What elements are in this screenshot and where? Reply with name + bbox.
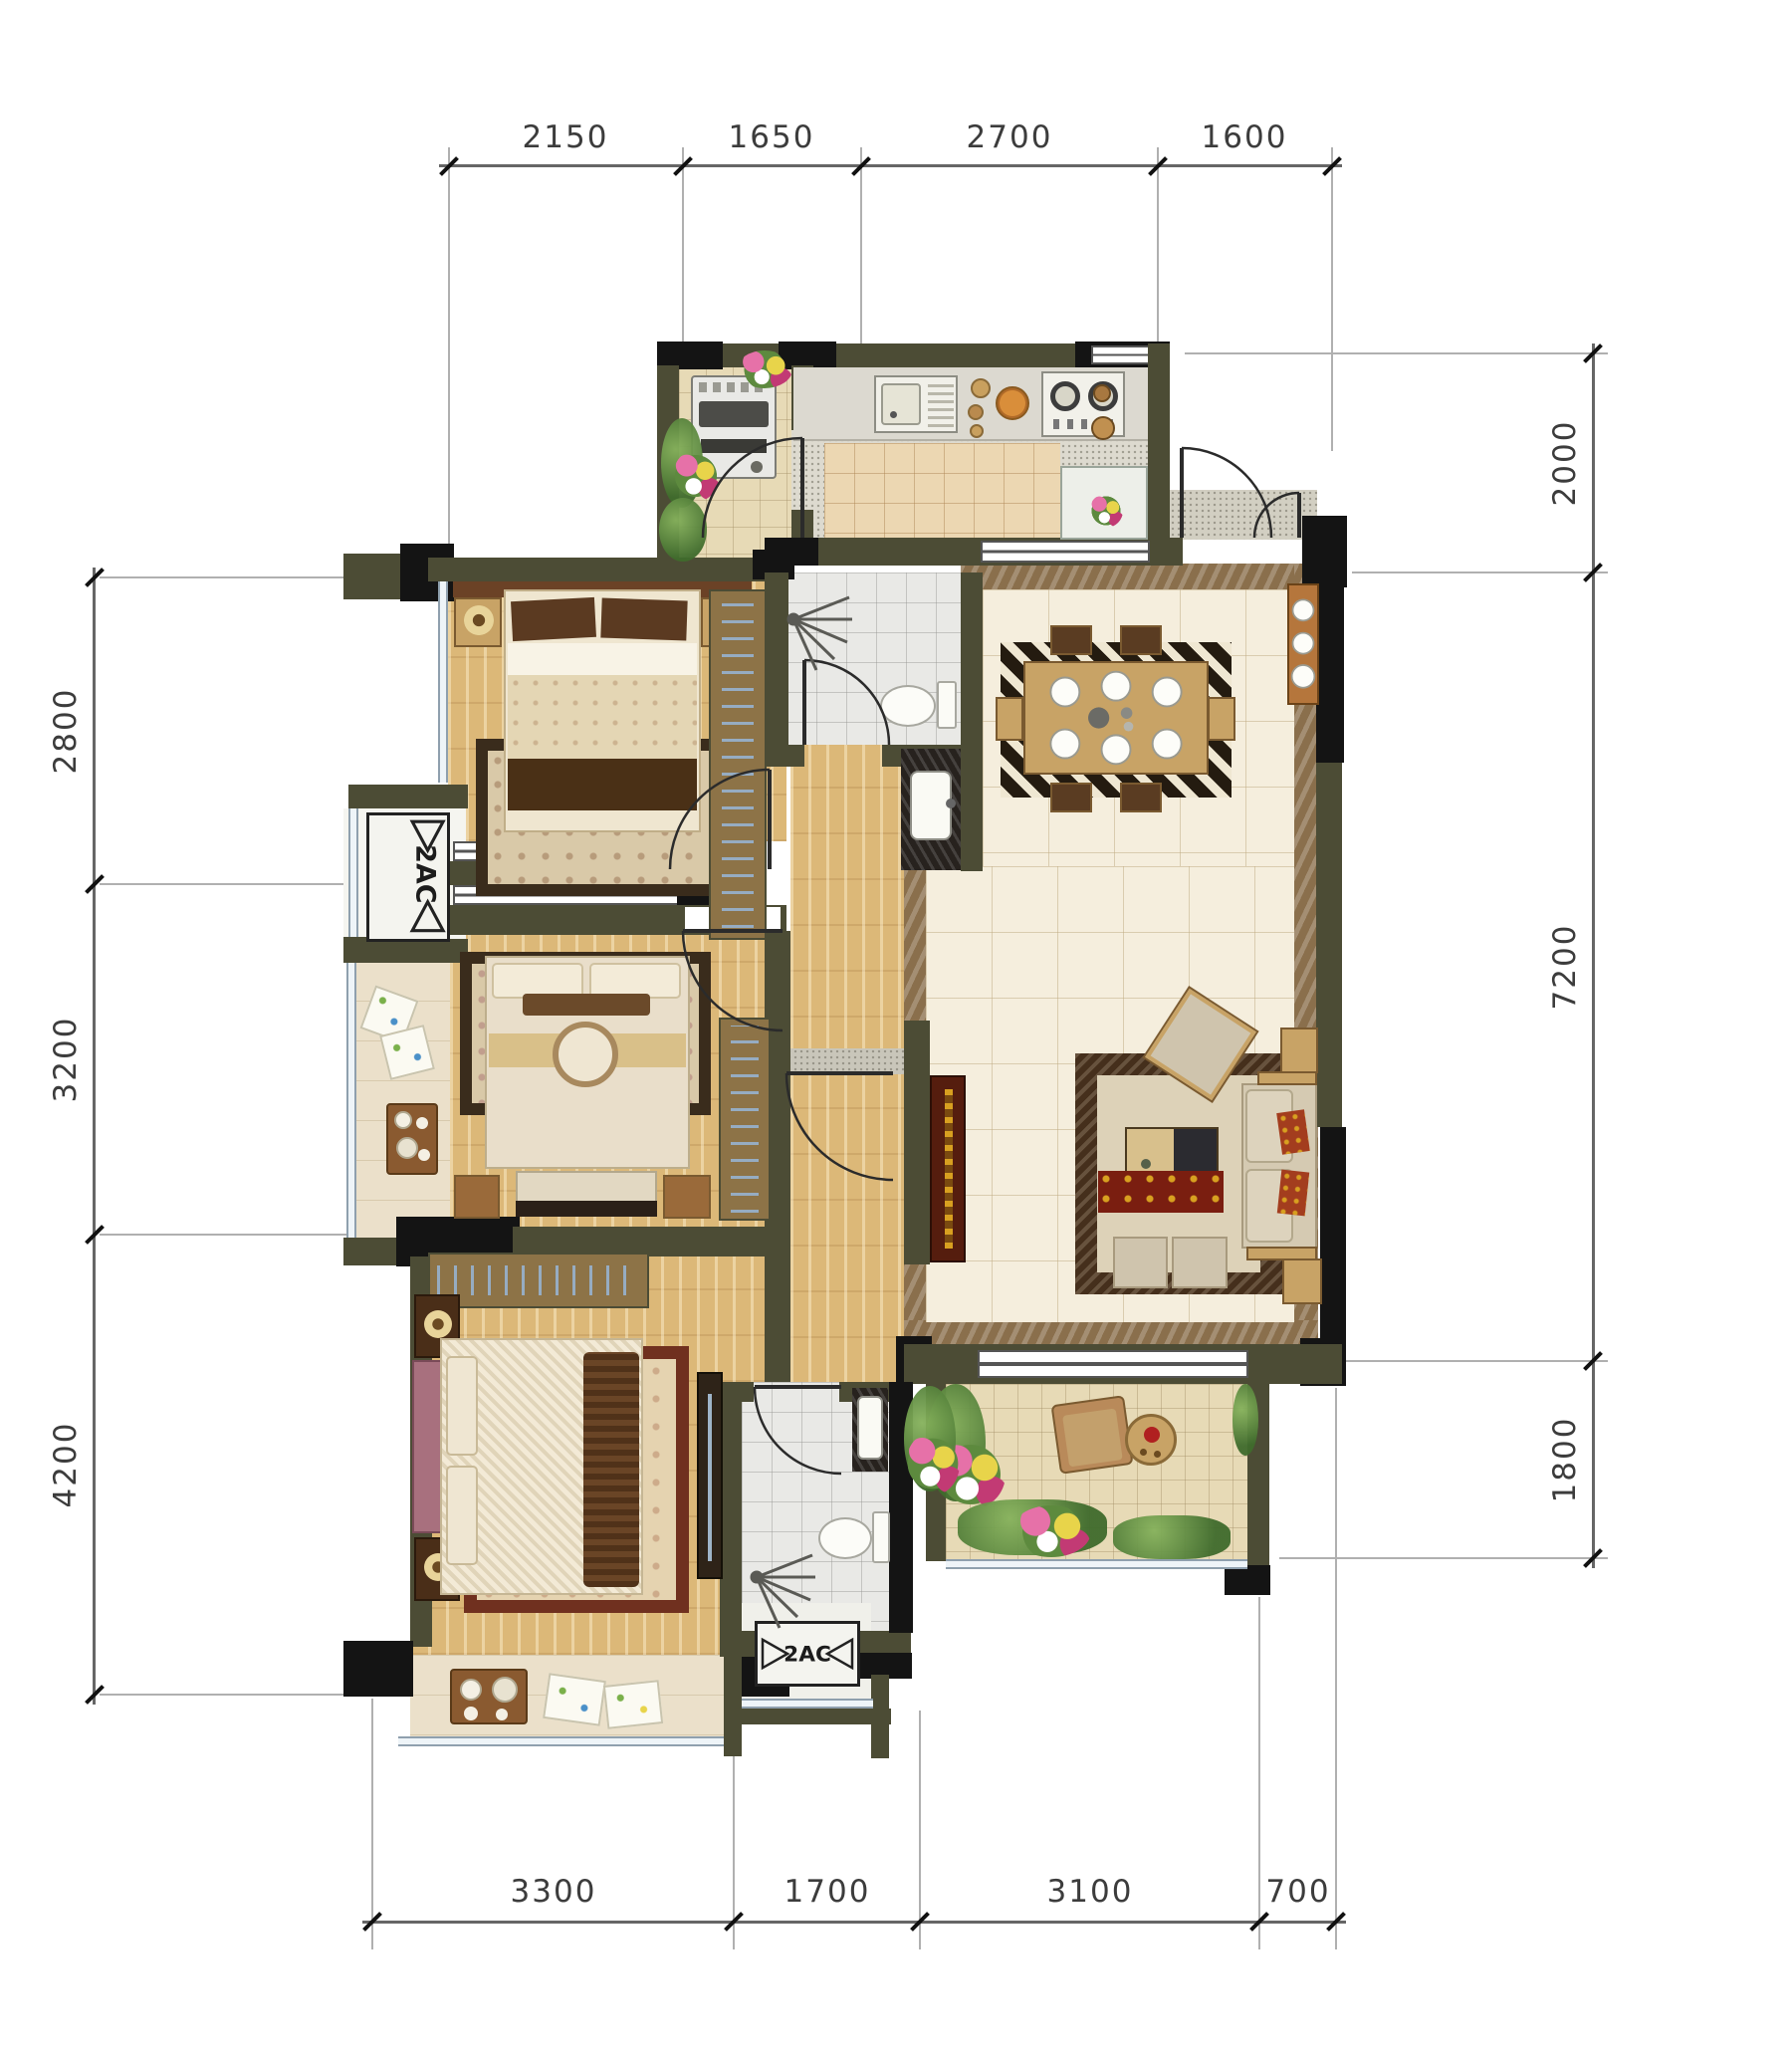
wall bbox=[791, 510, 813, 540]
balcony-railing bbox=[946, 1559, 1247, 1569]
flowers bbox=[737, 350, 792, 388]
dimension-line-bottom bbox=[362, 1921, 1346, 1924]
extension-line bbox=[1258, 1597, 1260, 1949]
table-cup bbox=[1154, 1451, 1161, 1458]
entry-landing bbox=[1170, 490, 1317, 540]
tea-tray bbox=[450, 1669, 528, 1724]
bedroom2-bay-window bbox=[346, 963, 356, 1238]
side-table bbox=[1280, 1028, 1318, 1073]
bed1-sheet bbox=[508, 643, 697, 675]
bed1 bbox=[504, 589, 701, 832]
dim-label-right-2: 7200 bbox=[1547, 924, 1583, 1011]
dining-chair bbox=[1120, 783, 1162, 812]
bed3-fur-throw bbox=[583, 1352, 639, 1587]
sofa-pillow bbox=[1276, 1109, 1310, 1154]
wall bbox=[428, 558, 786, 581]
dim-label-top-3: 2700 bbox=[967, 119, 1053, 155]
balcony-plant bbox=[1232, 1384, 1258, 1456]
dim-label-left-2: 3200 bbox=[48, 1017, 84, 1103]
wall bbox=[765, 572, 788, 747]
bathroom1-floor bbox=[786, 572, 961, 747]
tv-wall bbox=[904, 1021, 930, 1264]
floor-plan: 2150 1650 2700 1600 2800 3200 4200 2000 … bbox=[0, 0, 1792, 2056]
sink-faucet bbox=[890, 411, 897, 418]
tea-cup bbox=[416, 1117, 428, 1129]
bed2-medallion bbox=[553, 1022, 618, 1087]
dim-label-top-1: 2150 bbox=[523, 119, 609, 155]
dining-chair bbox=[1050, 783, 1092, 812]
extension-line bbox=[100, 883, 346, 885]
console-table bbox=[1287, 583, 1319, 705]
tea-pot bbox=[396, 1137, 418, 1159]
dim-label-bottom-4: 700 bbox=[1265, 1874, 1330, 1910]
kitchen-cook-zone-floor bbox=[824, 443, 1060, 540]
washer-knob bbox=[751, 461, 763, 473]
ac-bottom-window bbox=[742, 1699, 873, 1709]
ottoman bbox=[1172, 1237, 1228, 1288]
extension-line bbox=[100, 576, 346, 578]
sofa-pillow bbox=[1277, 1170, 1309, 1217]
balcony-sliding-door bbox=[978, 1350, 1248, 1378]
burner bbox=[1050, 381, 1080, 411]
table-cup bbox=[1140, 1449, 1147, 1456]
toilet-tank bbox=[937, 681, 957, 729]
tv-console-decor bbox=[945, 1089, 953, 1249]
washer-slot bbox=[701, 439, 767, 453]
kitchen-sink bbox=[874, 375, 958, 433]
kitchen-serving-window bbox=[981, 541, 1150, 563]
wall bbox=[724, 1657, 742, 1756]
lamp bbox=[424, 1310, 452, 1338]
ac-left-label: 2AC bbox=[409, 844, 440, 903]
closet-rail bbox=[437, 1265, 641, 1294]
bed2 bbox=[485, 956, 690, 1169]
extension-line bbox=[1335, 1388, 1337, 1949]
bay-cushion bbox=[543, 1673, 606, 1726]
lounge-chair bbox=[1050, 1395, 1133, 1475]
toilet-bowl bbox=[880, 685, 936, 727]
wall bbox=[961, 572, 983, 871]
wall bbox=[742, 1382, 754, 1402]
dim-label-bottom-1: 3300 bbox=[511, 1874, 597, 1910]
toilet-bowl bbox=[818, 1517, 872, 1559]
stool bbox=[663, 1175, 711, 1219]
wall bbox=[1148, 469, 1170, 540]
marble-border bbox=[904, 1320, 1318, 1346]
bedroom3-closet bbox=[428, 1253, 649, 1308]
wall bbox=[1148, 343, 1170, 469]
bedroom3-bay-window bbox=[398, 1736, 729, 1746]
tea-cup bbox=[394, 1111, 412, 1129]
tea-cup bbox=[460, 1679, 482, 1701]
bed1-pillow bbox=[600, 598, 687, 641]
flowers bbox=[906, 1432, 960, 1495]
bedroom3-wardrobe bbox=[697, 1372, 723, 1579]
wall bbox=[765, 745, 804, 767]
dim-label-bottom-2: 1700 bbox=[784, 1874, 871, 1910]
marble-border bbox=[961, 564, 1316, 589]
dimension-line-left bbox=[93, 568, 96, 1705]
tea-pot bbox=[492, 1677, 518, 1703]
ac-unit-bottom: 2AC bbox=[755, 1621, 860, 1687]
lamp bbox=[464, 605, 494, 635]
dining-chair bbox=[996, 697, 1023, 741]
kitchen-window bbox=[1091, 345, 1153, 364]
extension-line bbox=[1352, 571, 1608, 573]
extension-line bbox=[371, 1699, 373, 1949]
dim-label-right-1: 2000 bbox=[1547, 420, 1583, 507]
kitchen-bowl bbox=[970, 424, 984, 438]
washer-door bbox=[699, 401, 769, 427]
tea-tray bbox=[386, 1103, 438, 1175]
bedroom1-wardrobe bbox=[709, 589, 767, 940]
wall bbox=[1320, 1127, 1346, 1344]
plant bbox=[659, 498, 707, 562]
food-plate bbox=[996, 386, 1029, 420]
table-runner bbox=[1098, 1171, 1224, 1213]
wall bbox=[348, 785, 468, 808]
sink-drainboard bbox=[928, 383, 954, 427]
side-table bbox=[1282, 1258, 1322, 1304]
tea-cup bbox=[496, 1709, 508, 1720]
ac-unit-left: 2AC bbox=[366, 812, 450, 942]
bath2-sink bbox=[857, 1396, 883, 1460]
decor-pot bbox=[1091, 416, 1115, 440]
ottoman bbox=[1113, 1237, 1168, 1288]
extension-line bbox=[860, 147, 862, 346]
wall bbox=[742, 1709, 891, 1724]
dim-label-top-2: 1650 bbox=[729, 119, 815, 155]
dim-label-bottom-3: 3100 bbox=[1047, 1874, 1134, 1910]
extension-line bbox=[100, 1234, 346, 1236]
wall bbox=[1316, 558, 1344, 763]
dimension-line-top bbox=[439, 164, 1342, 167]
tea-cup bbox=[418, 1149, 430, 1161]
table-flower bbox=[1144, 1427, 1160, 1443]
sink-basin bbox=[881, 383, 921, 425]
extension-line bbox=[919, 1711, 921, 1949]
balcony-plant bbox=[1113, 1515, 1231, 1559]
dim-label-top-4: 1600 bbox=[1202, 119, 1288, 155]
stool bbox=[454, 1175, 500, 1219]
wardrobe-rail bbox=[722, 601, 754, 927]
bed3 bbox=[440, 1338, 643, 1595]
extension-line bbox=[1279, 1557, 1608, 1559]
bedroom1-window-wall bbox=[438, 581, 448, 783]
extension-line bbox=[682, 147, 684, 346]
decor-pot bbox=[1093, 384, 1111, 402]
wall bbox=[765, 1238, 790, 1382]
flowers bbox=[673, 450, 719, 502]
wall bbox=[1316, 763, 1342, 1127]
dining-table bbox=[1023, 661, 1209, 775]
wardrobe-handle bbox=[708, 1394, 712, 1561]
extension-line bbox=[100, 1694, 346, 1696]
bed1-throw bbox=[508, 759, 697, 810]
bed3-headboard bbox=[412, 1360, 442, 1533]
wall-corner bbox=[343, 1641, 413, 1697]
dim-label-left-3: 4200 bbox=[48, 1422, 84, 1508]
balcony-flowers bbox=[1011, 1505, 1091, 1557]
bed1-pillow bbox=[511, 597, 596, 641]
flower-decor bbox=[1089, 494, 1123, 528]
wall bbox=[720, 1382, 742, 1657]
wall-corner bbox=[1225, 1565, 1270, 1595]
toilet-tank bbox=[872, 1511, 890, 1563]
extension-line bbox=[1185, 352, 1608, 354]
bedroom3-threshold bbox=[786, 1048, 904, 1074]
vanity-faucet bbox=[946, 799, 956, 808]
dimension-line-right bbox=[1592, 343, 1595, 1568]
dining-chair bbox=[1050, 625, 1092, 655]
ac-left-window bbox=[348, 808, 358, 939]
bay-cushion bbox=[603, 1680, 663, 1729]
table-decor bbox=[1141, 1159, 1151, 1169]
bed3-pillow bbox=[446, 1466, 478, 1565]
lounge-cushion bbox=[1062, 1408, 1123, 1467]
extension-line bbox=[448, 147, 450, 558]
bedroom2-wardrobe bbox=[719, 1018, 771, 1221]
balcony-table bbox=[1125, 1414, 1177, 1466]
extension-line bbox=[1331, 147, 1333, 451]
tv-console bbox=[930, 1075, 966, 1262]
sofa-armrest bbox=[1257, 1071, 1317, 1085]
wardrobe-rail bbox=[731, 1026, 760, 1213]
dim-label-left-1: 2800 bbox=[48, 688, 84, 775]
kitchen-bowl bbox=[968, 404, 984, 420]
bed2-bench-base bbox=[516, 1201, 657, 1217]
bed2-lumbar-pillow bbox=[523, 994, 650, 1016]
dim-label-right-3: 1800 bbox=[1547, 1417, 1583, 1503]
dining-chair bbox=[1120, 625, 1162, 655]
ac-bottom-label: 2AC bbox=[784, 1643, 831, 1668]
tea-cup bbox=[464, 1707, 478, 1720]
dining-chair bbox=[1208, 697, 1235, 741]
sofa bbox=[1241, 1083, 1317, 1249]
kitchen-bowl bbox=[971, 378, 991, 398]
bed3-pillow bbox=[446, 1356, 478, 1456]
extension-line bbox=[1157, 147, 1159, 346]
